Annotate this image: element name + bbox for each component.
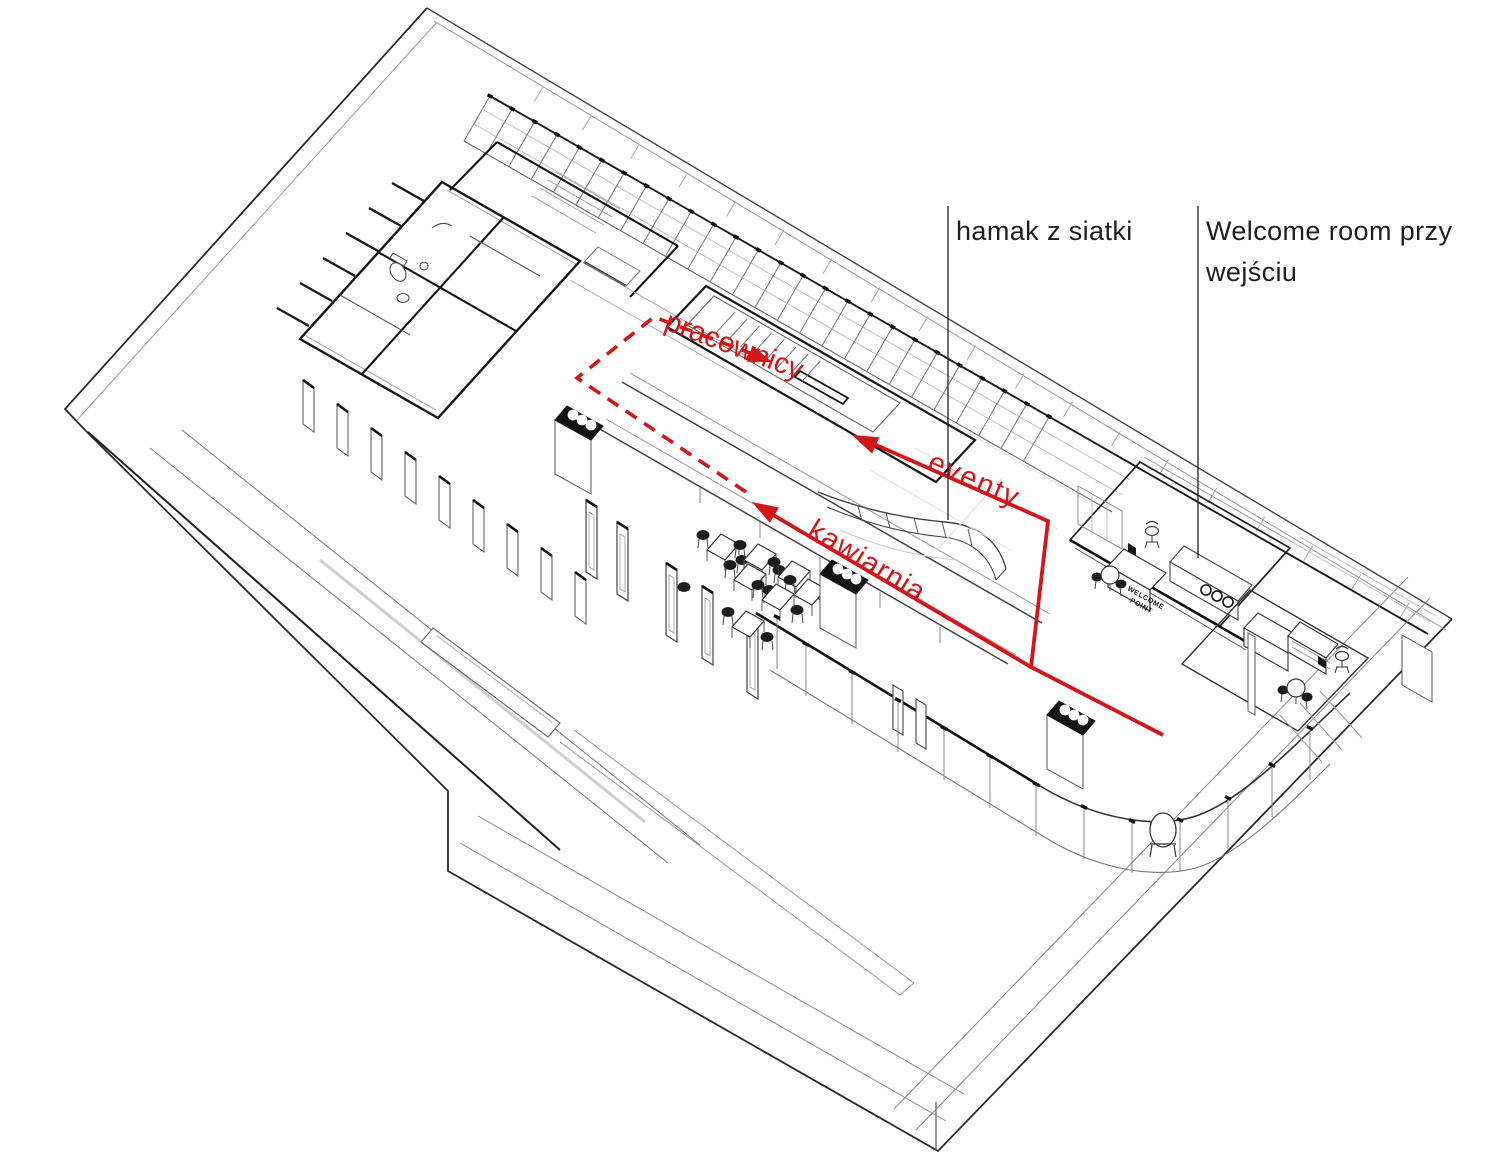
terrace-chair	[1150, 813, 1176, 857]
axonometric-plan-drawing: WELCOME POINT pracownicy eventy kawiarni…	[0, 0, 1500, 1176]
leader-lines	[948, 206, 1198, 558]
light-columns	[555, 406, 1095, 789]
ramp	[88, 430, 914, 995]
glass-facade	[464, 95, 1428, 634]
route-arrow-eventy	[852, 435, 879, 454]
label-welcome-room: Welcome room przy wejściu	[1206, 211, 1452, 293]
label-welcome-room-line2: wejściu	[1206, 252, 1452, 293]
cafe-chair	[678, 582, 691, 592]
label-welcome-room-line1: Welcome room przy	[1206, 211, 1452, 252]
label-hamak-z-siatki: hamak z siatki	[956, 211, 1133, 252]
folding-doors	[586, 500, 758, 699]
floor-plan-canvas: WELCOME POINT pracownicy eventy kawiarni…	[0, 0, 1500, 1176]
roof-band-ticks	[534, 87, 1409, 618]
corridor-fins	[303, 380, 586, 624]
toilet-block	[277, 182, 580, 418]
circulation-routes: pracownicy eventy kawiarnia	[577, 306, 1163, 735]
